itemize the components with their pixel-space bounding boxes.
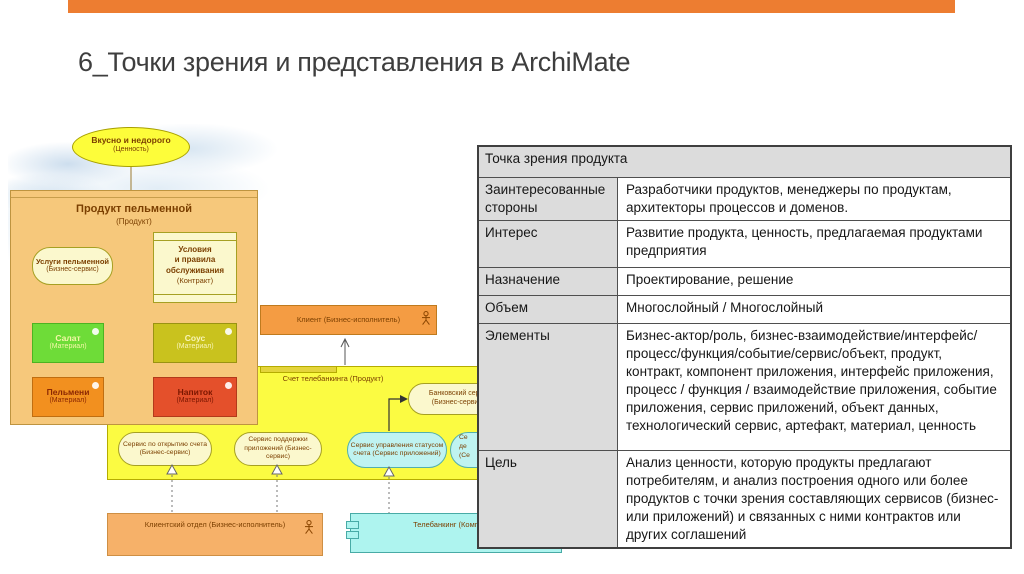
slide-title: 6_Точки зрения и представления в ArchiMa… [78,47,938,78]
service-account-status-node: Сервис управления статусом счета (Сервис… [347,432,447,468]
row-value: Многослойный / Многослойный [618,296,1010,323]
row-value: Бизнес-актор/роль, бизнес-взаимодействие… [618,324,1010,450]
row-value: Разработчики продуктов, менеджеры по про… [618,178,1010,220]
service-app-support-node: Сервис поддержки приложений (Бизнес-серв… [234,432,322,466]
table-row-scope: Объем Многослойный / Многослойный [479,296,1010,324]
client-department-label: Клиентский отдел (Бизнес-исполнитель) [108,520,322,529]
account-product-label: Счет телебанкинга (Продукт) [238,374,428,383]
table-row-concerns: Интерес Развитие продукта, ценность, пре… [479,221,1010,268]
row-value: Анализ ценности, которую продукты предла… [618,451,1010,547]
top-accent-bar [68,0,955,13]
material-drink-type: (Материал) [154,397,236,404]
table-row-stakeholders: Заинтересованные стороны Разработчики пр… [479,178,1010,221]
material-drink-node: Напиток (Материал) [153,377,237,417]
material-icon [225,382,232,389]
row-label: Объем [479,296,618,323]
material-salad-node: Салат (Материал) [32,323,104,363]
material-salad-name: Салат [33,333,103,343]
contract-line2: и правила [154,255,236,265]
service-app-support-label: Сервис поддержки приложений (Бизнес-серв… [235,436,321,461]
value-ellipse-node: Вкусно и недорого (Ценность) [72,127,190,167]
material-salad-type: (Материал) [33,343,103,350]
component-icon [346,521,359,529]
table-header: Точка зрения продукта [479,147,1010,178]
actor-icon [421,311,431,326]
material-pelmeni-node: Пельмени (Материал) [32,377,104,417]
contract-type: (Контракт) [154,276,236,285]
table-row-goal: Цель Анализ ценности, которую продукты п… [479,451,1010,547]
service-open-account-node: Сервис по открытию счета (Бизнес-сервис) [118,432,212,466]
client-actor-node: Клиент (Бизнес-исполнитель) [260,305,437,335]
material-pelmeni-type: (Материал) [33,397,103,404]
material-sauce-name: Соус [154,333,236,343]
row-label: Цель [479,451,618,547]
service-open-account-label: Сервис по открытию счета (Бизнес-сервис) [119,441,211,458]
contract-node: Условия и правила обслуживания (Контракт… [153,232,237,303]
product-box-type: (Продукт) [11,217,257,227]
client-actor-label: Клиент (Бизнес-исполнитель) [261,315,436,324]
row-value: Проектирование, решение [618,268,1010,295]
product-box-name: Продукт пельменной [11,203,257,217]
row-label: Элементы [479,324,618,450]
material-icon [92,382,99,389]
viewpoint-table: Точка зрения продукта Заинтересованные с… [477,145,1012,549]
material-icon [225,328,232,335]
table-row-purpose: Назначение Проектирование, решение [479,268,1010,296]
presentation-slide: 6_Точки зрения и представления в ArchiMa… [0,0,1024,574]
contract-line3: обслуживания [154,266,236,276]
material-icon [92,328,99,335]
account-client-arrowhead [341,339,349,347]
contract-line1: Условия [154,245,236,255]
value-name: Вкусно и недорого [73,135,189,146]
component-icon [346,531,359,539]
row-label: Назначение [479,268,618,295]
contract-bottom-line [154,294,236,295]
material-pelmeni-name: Пельмени [33,387,103,397]
material-sauce-node: Соус (Материал) [153,323,237,363]
row-value: Развитие продукта, ценность, предлагаема… [618,221,1010,267]
service-account-status-label: Сервис управления статусом счета (Сервис… [348,442,446,459]
row-label: Интерес [479,221,618,267]
business-service-name: Услуги пельменной [33,257,112,266]
actor-icon [304,520,314,535]
table-row-elements: Элементы Бизнес-актор/роль, бизнес-взаим… [479,324,1010,451]
material-sauce-type: (Материал) [154,343,236,350]
business-service-node: Услуги пельменной (Бизнес-сервис) [32,247,113,285]
client-department-node: Клиентский отдел (Бизнес-исполнитель) [107,513,323,556]
material-drink-name: Напиток [154,387,236,397]
product-box-inner-line [11,197,257,198]
business-service-type: (Бизнес-сервис) [33,266,112,275]
contract-top-line [154,240,236,241]
value-type: (Ценность) [73,146,189,155]
account-product-tab [260,366,337,373]
row-label: Заинтересованные стороны [479,178,618,220]
